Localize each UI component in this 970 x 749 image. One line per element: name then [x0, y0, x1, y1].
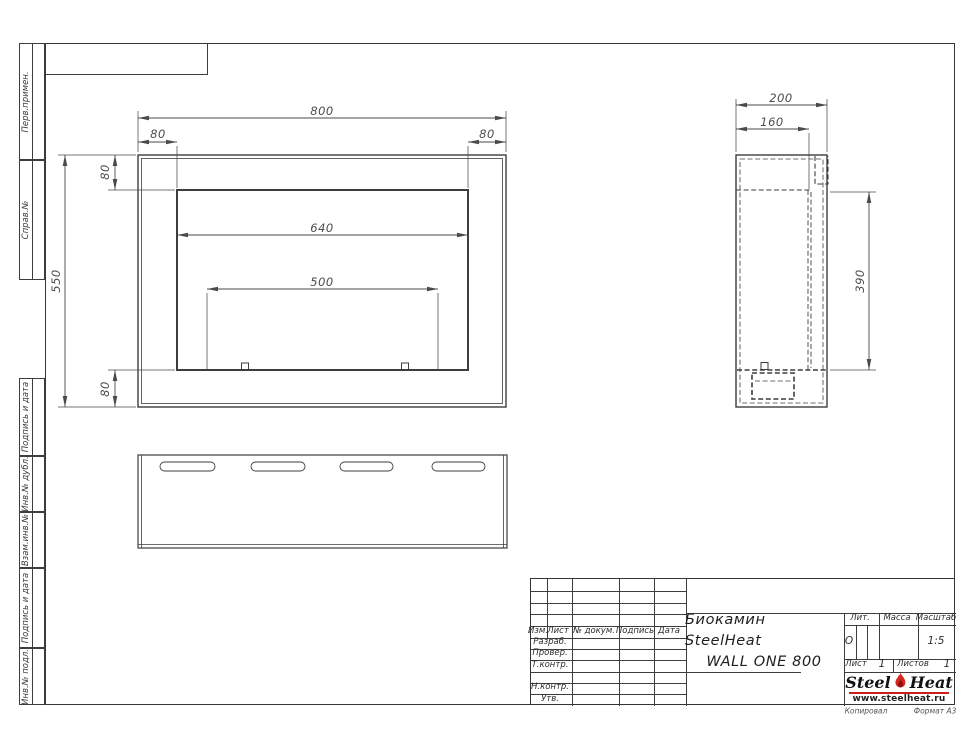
stamp-cell-divider — [32, 44, 33, 159]
flame-icon — [893, 672, 908, 691]
tb-scale-value: 1:5 — [928, 635, 945, 647]
tb-row-tkontr: Т.контр. — [532, 660, 569, 670]
tb-col-izm: Изм. — [528, 626, 548, 636]
stamp-cell-divider — [32, 569, 33, 647]
stamp-cell-podpis-data-2: Подпись и дата — [19, 568, 45, 648]
stamp-cell-label: Подпись и дата — [21, 382, 31, 452]
stamp-cell-label: Справ.№ — [21, 201, 31, 240]
drawing-title-line2: WALL ONE 800 — [706, 652, 821, 673]
tb-sheets-num: 1 — [944, 658, 951, 670]
stamp-cell-perv-primen: Перв.примен. — [19, 43, 45, 160]
footer-format: Формат А3 — [914, 707, 957, 716]
stamp-cell-label: Подпись и дата — [21, 573, 31, 643]
stamp-cell-inv-podl: Инв.№ подл. — [19, 648, 45, 705]
stamp-cell-podpis-data-1: Подпись и дата — [19, 378, 45, 456]
logo-url: www.steelheat.ru — [849, 692, 948, 704]
tb-lit-label: Лит. — [850, 613, 870, 623]
drawing-sheet: 800 80 80 80 550 80 640 500 200 160 390 … — [0, 0, 970, 749]
tb-scale-label: Масштаб — [916, 613, 956, 623]
steelheat-logo-wordmark: Steel Heat — [845, 672, 952, 691]
tb-row-utv: Утв. — [541, 694, 559, 704]
stamp-cell-label: Взам.инв.№ — [21, 514, 31, 566]
tb-col-list: Лист — [547, 626, 569, 636]
tb-col-date: Дата — [658, 626, 680, 636]
stamp-cell-divider — [32, 161, 33, 279]
stamp-cell-label: Перв.примен. — [21, 71, 31, 132]
tb-sheets-label: Листов — [897, 659, 929, 669]
stamp-cell-label: Инв.№ дубл. — [21, 456, 31, 511]
stamp-cell-divider — [32, 649, 33, 704]
logo-heat-text: Heat — [910, 675, 953, 691]
tb-row-prover: Провер. — [532, 648, 567, 658]
stamp-cell-label: Инв.№ подл. — [21, 649, 31, 705]
tb-mass-label: Масса — [883, 613, 910, 623]
stamp-cell-divider — [32, 379, 33, 455]
tb-row-razrab: Разраб. — [533, 637, 566, 647]
logo-steel-text: Steel — [845, 675, 890, 691]
stamp-cell-divider — [32, 513, 33, 567]
designation-cell — [45, 43, 208, 75]
tb-sheet-num: 1 — [879, 658, 886, 670]
stamp-cell-inv-dubl: Инв.№ дубл. — [19, 456, 45, 512]
drawing-title-line1: Биокамин SteelHeat — [685, 610, 843, 652]
tb-col-doc: № докум. — [573, 626, 615, 636]
tb-row-nkontr: Н.контр. — [531, 682, 569, 692]
drawing-title: Биокамин SteelHeat WALL ONE 800 — [685, 612, 843, 671]
tb-sheet-label: Лист — [845, 659, 867, 669]
stamp-cell-vzam-inv: Взам.инв.№ — [19, 512, 45, 568]
steelheat-logo: Steel Heat www.steelheat.ru — [843, 671, 955, 705]
stamp-cell-sprav-no: Справ.№ — [19, 160, 45, 280]
tb-col-sign: Подпись — [616, 626, 654, 636]
footer-kopiroval: Копировал — [845, 707, 888, 716]
tb-lit-value: О — [845, 635, 853, 647]
stamp-cell-divider — [32, 457, 33, 511]
